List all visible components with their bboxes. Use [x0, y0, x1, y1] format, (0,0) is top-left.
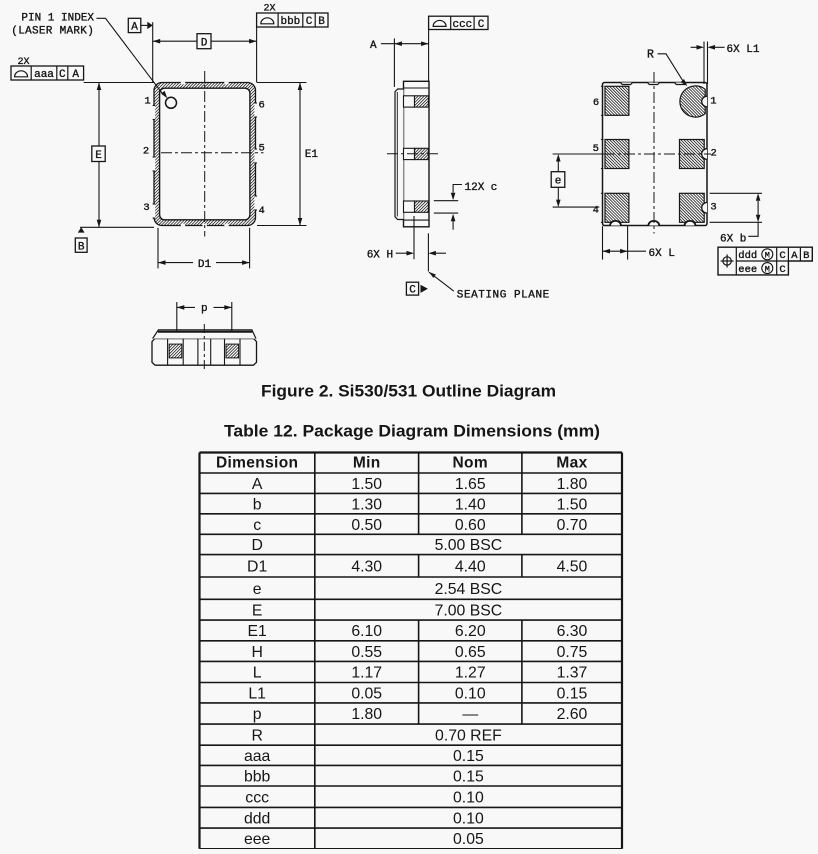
- svg-text:6.30: 6.30: [557, 623, 588, 640]
- svg-text:0.15: 0.15: [453, 748, 484, 765]
- svg-text:0.50: 0.50: [351, 517, 382, 534]
- svg-text:aaa: aaa: [244, 748, 271, 765]
- svg-text:Dimension: Dimension: [216, 454, 298, 471]
- svg-text:4: 4: [259, 205, 265, 217]
- svg-text:0.55: 0.55: [351, 644, 382, 661]
- svg-text:Max: Max: [556, 454, 587, 471]
- svg-text:c: c: [491, 182, 498, 194]
- svg-text:A: A: [72, 69, 79, 81]
- svg-text:3: 3: [143, 202, 149, 214]
- svg-text:M: M: [765, 264, 770, 274]
- svg-text:2: 2: [143, 145, 149, 157]
- svg-text:5: 5: [259, 143, 265, 155]
- svg-text:p: p: [201, 303, 208, 315]
- svg-text:1: 1: [144, 96, 150, 108]
- svg-text:H: H: [251, 644, 262, 661]
- svg-text:A: A: [791, 250, 798, 262]
- svg-text:6.10: 6.10: [351, 623, 382, 640]
- svg-text:1.37: 1.37: [557, 665, 588, 682]
- svg-text:ddd: ddd: [244, 810, 270, 827]
- svg-text:E1: E1: [305, 149, 319, 161]
- svg-text:4.40: 4.40: [455, 559, 486, 576]
- svg-text:C: C: [478, 19, 485, 31]
- svg-text:4.50: 4.50: [557, 559, 588, 576]
- svg-text:0.10: 0.10: [453, 789, 484, 806]
- svg-text:(LASER MARK): (LASER MARK): [11, 26, 94, 38]
- svg-text:2: 2: [710, 148, 716, 160]
- svg-text:3: 3: [710, 202, 716, 214]
- svg-text:Figure 2. Si530/531 Outline Di: Figure 2. Si530/531 Outline Diagram: [261, 382, 556, 401]
- svg-text:C: C: [779, 264, 785, 276]
- svg-text:7.00 BSC: 7.00 BSC: [435, 602, 503, 619]
- svg-text:L: L: [253, 665, 262, 682]
- svg-text:ccc: ccc: [452, 19, 472, 31]
- svg-text:6: 6: [259, 100, 265, 112]
- svg-text:0.05: 0.05: [453, 831, 484, 848]
- svg-text:1.40: 1.40: [455, 496, 486, 513]
- svg-text:E: E: [252, 602, 263, 619]
- svg-text:1.65: 1.65: [455, 476, 486, 493]
- svg-text:R: R: [647, 49, 654, 62]
- svg-text:0.15: 0.15: [453, 768, 484, 785]
- svg-text:SEATING PLANE: SEATING PLANE: [457, 289, 550, 301]
- svg-text:6.20: 6.20: [455, 623, 486, 640]
- svg-text:B: B: [78, 242, 85, 254]
- svg-text:0.10: 0.10: [455, 685, 486, 702]
- svg-text:bbb: bbb: [280, 16, 300, 28]
- svg-text:1.27: 1.27: [455, 665, 486, 682]
- svg-text:1: 1: [710, 96, 716, 108]
- svg-text:0.65: 0.65: [455, 644, 486, 661]
- svg-text:eee: eee: [244, 831, 271, 848]
- svg-text:Min: Min: [353, 454, 381, 471]
- svg-text:0.60: 0.60: [455, 517, 486, 534]
- svg-text:1.80: 1.80: [351, 706, 382, 723]
- svg-text:0.70 REF: 0.70 REF: [435, 727, 502, 744]
- svg-text:6X L: 6X L: [649, 248, 675, 260]
- svg-text:2.54 BSC: 2.54 BSC: [435, 581, 503, 598]
- svg-text:R: R: [251, 727, 262, 744]
- svg-text:p: p: [253, 706, 262, 723]
- svg-text:D: D: [201, 38, 208, 50]
- svg-text:0.10: 0.10: [453, 810, 484, 827]
- svg-text:C: C: [409, 284, 416, 296]
- svg-text:D1: D1: [247, 559, 267, 576]
- svg-text:eee: eee: [738, 264, 757, 276]
- svg-text:6X H: 6X H: [367, 250, 393, 262]
- svg-text:Nom: Nom: [453, 454, 489, 471]
- svg-text:2.60: 2.60: [557, 706, 588, 723]
- svg-text:6X b: 6X b: [720, 233, 746, 245]
- svg-text:0.15: 0.15: [557, 685, 588, 702]
- svg-text:L1: L1: [248, 685, 266, 702]
- svg-text:c: c: [253, 517, 261, 534]
- svg-text:0.05: 0.05: [351, 685, 382, 702]
- svg-text:E1: E1: [247, 623, 267, 640]
- svg-text:4.30: 4.30: [351, 559, 382, 576]
- svg-text:D: D: [251, 537, 262, 554]
- svg-text:A: A: [131, 22, 138, 34]
- svg-text:12X: 12X: [465, 182, 485, 194]
- svg-text:ccc: ccc: [245, 789, 269, 806]
- svg-text:1.50: 1.50: [557, 496, 588, 513]
- svg-text:ddd: ddd: [738, 250, 757, 262]
- svg-text:6X L1: 6X L1: [727, 44, 760, 56]
- svg-text:A: A: [370, 40, 377, 52]
- svg-text:Table 12. Package Diagram Dime: Table 12. Package Diagram Dimensions (mm…: [224, 422, 600, 441]
- svg-text:6: 6: [593, 97, 599, 109]
- svg-text:C: C: [59, 69, 66, 81]
- svg-text:e: e: [555, 176, 562, 188]
- svg-text:A: A: [252, 476, 263, 493]
- svg-text:5.00 BSC: 5.00 BSC: [435, 537, 503, 554]
- svg-text:D1: D1: [198, 259, 212, 271]
- svg-text:C: C: [306, 16, 313, 28]
- svg-text:B: B: [803, 250, 809, 262]
- svg-text:b: b: [253, 496, 262, 513]
- svg-text:C: C: [779, 250, 785, 262]
- svg-text:e: e: [253, 581, 262, 598]
- svg-text:M: M: [765, 251, 770, 261]
- svg-text:5: 5: [593, 143, 599, 155]
- svg-text:—: —: [462, 706, 478, 723]
- svg-text:aaa: aaa: [34, 69, 54, 81]
- svg-text:PIN 1 INDEX: PIN 1 INDEX: [21, 13, 94, 25]
- svg-text:0.70: 0.70: [557, 517, 588, 534]
- svg-text:4: 4: [593, 205, 599, 217]
- svg-text:1.30: 1.30: [351, 496, 382, 513]
- svg-text:1.80: 1.80: [557, 476, 588, 493]
- svg-text:1.17: 1.17: [351, 665, 382, 682]
- svg-text:E: E: [95, 150, 102, 162]
- svg-text:0.75: 0.75: [557, 644, 588, 661]
- svg-text:B: B: [318, 16, 325, 28]
- svg-text:bbb: bbb: [244, 768, 271, 785]
- svg-text:1.50: 1.50: [351, 476, 382, 493]
